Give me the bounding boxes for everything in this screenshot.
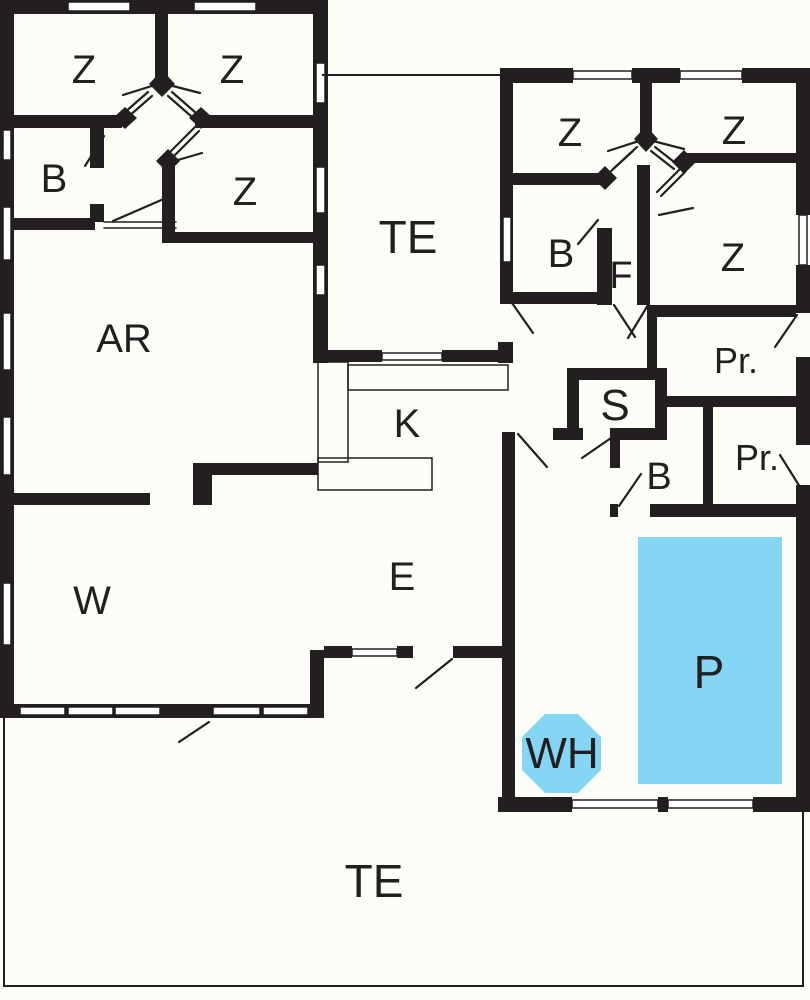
wall — [155, 14, 168, 78]
door-swing — [628, 305, 648, 338]
wall — [318, 350, 382, 362]
wall — [0, 0, 322, 14]
wall — [650, 504, 796, 517]
door-swing — [179, 722, 209, 742]
door-swing — [113, 198, 166, 221]
wall — [703, 403, 713, 512]
window — [3, 417, 11, 475]
door-leaf — [609, 151, 633, 173]
pool — [638, 537, 782, 784]
wall — [753, 797, 810, 812]
door-swing — [619, 474, 641, 506]
window — [680, 71, 742, 79]
wall — [0, 115, 122, 128]
window — [68, 2, 130, 11]
wall — [0, 218, 95, 230]
door-swing — [780, 455, 800, 487]
wall — [796, 485, 810, 812]
wall — [687, 153, 796, 163]
door-swing — [775, 315, 797, 347]
door-swing — [518, 434, 547, 467]
door-swing — [123, 85, 155, 95]
window — [3, 313, 11, 370]
wall — [397, 646, 413, 658]
wall — [500, 173, 600, 185]
wall — [796, 357, 810, 445]
window — [573, 71, 632, 79]
floor-plan: Z Z B Z AR TE K W E TE Z Z B F Z Pr. S B… — [0, 0, 810, 1000]
window — [3, 583, 11, 645]
window — [668, 800, 753, 808]
plan-svg — [0, 0, 810, 1000]
window — [352, 649, 397, 656]
window — [382, 353, 442, 360]
wall — [500, 292, 612, 304]
wall — [610, 428, 667, 440]
counter — [318, 458, 432, 490]
window — [572, 800, 658, 808]
wall — [324, 646, 352, 658]
terrace-outline — [3, 75, 804, 987]
window — [3, 130, 11, 160]
wall — [610, 440, 620, 468]
window — [115, 707, 160, 715]
window — [213, 707, 260, 715]
wall — [640, 83, 652, 133]
wall — [655, 396, 796, 407]
counter — [318, 362, 348, 462]
wall — [647, 305, 796, 317]
wall — [796, 68, 810, 215]
window — [20, 707, 65, 715]
window — [316, 63, 325, 103]
window — [3, 207, 11, 260]
kitchen-counter — [318, 362, 508, 490]
wall — [195, 115, 313, 128]
window — [799, 215, 807, 265]
wall — [498, 342, 513, 363]
door-swing — [416, 659, 452, 688]
wall — [212, 463, 318, 475]
door-post — [634, 126, 658, 152]
wall — [310, 650, 324, 718]
wall — [610, 504, 618, 517]
window — [194, 2, 256, 11]
window — [316, 265, 325, 295]
wall — [502, 432, 515, 812]
window — [263, 707, 308, 715]
window — [316, 167, 325, 213]
wall — [632, 68, 680, 83]
window — [68, 707, 113, 715]
door-swing — [659, 208, 693, 215]
counter — [348, 365, 508, 390]
door-post — [149, 70, 175, 97]
whirlpool — [522, 714, 601, 793]
wall — [796, 265, 810, 313]
window — [503, 217, 511, 262]
wall — [162, 232, 313, 243]
door-swing — [582, 438, 611, 458]
wall — [658, 797, 668, 812]
wall — [14, 493, 150, 505]
door-swing — [578, 220, 598, 244]
wall — [193, 463, 212, 505]
wall — [567, 368, 667, 380]
door-swing — [512, 303, 533, 333]
wall — [637, 165, 650, 305]
door-swing — [169, 85, 200, 93]
wall — [553, 428, 583, 440]
